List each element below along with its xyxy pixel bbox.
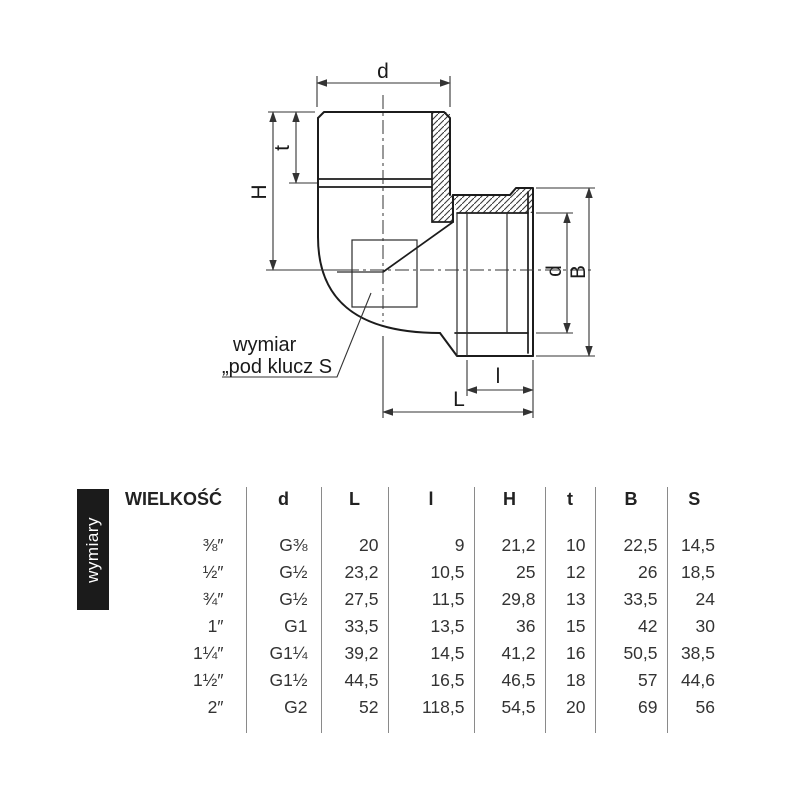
table-cell: 33,5 <box>595 586 667 613</box>
table-header-row: WIELKOŚĆdLlHtBS <box>115 487 721 532</box>
table-cell: 24 <box>667 586 721 613</box>
dim-label-d-top: d <box>377 60 389 83</box>
table-cell: 1″ <box>115 613 246 640</box>
dim-label-B: B <box>567 265 590 279</box>
table-cell: ⅜″ <box>115 532 246 559</box>
technical-drawing: d t H d B l L wymiar „pod klucz S <box>0 0 800 460</box>
dim-label-t: t <box>271 145 294 151</box>
table-cell: 50,5 <box>595 640 667 667</box>
table-row: 1½″G1½44,516,546,5185744,6 <box>115 667 721 694</box>
table-cell: 25 <box>474 559 545 586</box>
table-cell: 14,5 <box>667 532 721 559</box>
table-row: ½″G½23,210,525122618,5 <box>115 559 721 586</box>
column-header-l: L <box>321 487 388 532</box>
table-cell: 69 <box>595 694 667 721</box>
table-cell: 46,5 <box>474 667 545 694</box>
table-cell: ¾″ <box>115 586 246 613</box>
table-cell: 44,6 <box>667 667 721 694</box>
table-cell: 22,5 <box>595 532 667 559</box>
column-header-l: l <box>388 487 474 532</box>
dim-label-L: L <box>453 388 465 411</box>
table-cell: 20 <box>321 532 388 559</box>
spacer-cell <box>388 721 474 733</box>
table-cell: 1¼″ <box>115 640 246 667</box>
table-cell: 26 <box>595 559 667 586</box>
table-cell: 12 <box>545 559 595 586</box>
table-cell: 57 <box>595 667 667 694</box>
table-cell: G1 <box>246 613 321 640</box>
spacer-cell <box>474 721 545 733</box>
note-line-1: wymiar <box>232 334 297 356</box>
column-header-b: B <box>595 487 667 532</box>
elbow-body-outline <box>318 112 533 356</box>
spacer-cell <box>321 721 388 733</box>
dimensions-section: wymiary WIELKOŚĆdLlHtBS ⅜″G⅜20921,21022,… <box>77 487 727 733</box>
column-header-wielkość: WIELKOŚĆ <box>115 487 246 532</box>
spacer-cell <box>115 721 246 733</box>
table-cell: 44,5 <box>321 667 388 694</box>
table-cell: 16,5 <box>388 667 474 694</box>
table-cell: 118,5 <box>388 694 474 721</box>
column-header-h: H <box>474 487 545 532</box>
column-header-s: S <box>667 487 721 532</box>
table-bottom-spacer <box>115 721 721 733</box>
table-cell: 38,5 <box>667 640 721 667</box>
table-cell: 10 <box>545 532 595 559</box>
table-cell: 1½″ <box>115 667 246 694</box>
note-line-2: „pod klucz S <box>222 356 332 378</box>
table-cell: 42 <box>595 613 667 640</box>
elbow-detail-lines <box>337 213 507 356</box>
size-table: WIELKOŚĆdLlHtBS ⅜″G⅜20921,21022,514,5½″G… <box>115 487 721 733</box>
table-cell: 30 <box>667 613 721 640</box>
table-cell: G2 <box>246 694 321 721</box>
table-cell: 18 <box>545 667 595 694</box>
spacer-cell <box>667 721 721 733</box>
table-cell: G⅜ <box>246 532 321 559</box>
table-cell: 36 <box>474 613 545 640</box>
table-cell: ½″ <box>115 559 246 586</box>
table-cell: G1¼ <box>246 640 321 667</box>
section-label-badge: wymiary <box>77 489 109 610</box>
column-header-d: d <box>246 487 321 532</box>
elbow-internal-lines <box>318 112 528 353</box>
table-row: 1¼″G1¼39,214,541,21650,538,5 <box>115 640 721 667</box>
table-cell: 21,2 <box>474 532 545 559</box>
table-cell: 41,2 <box>474 640 545 667</box>
dim-label-d-right: d <box>543 265 566 277</box>
table-cell: 56 <box>667 694 721 721</box>
spacer-cell <box>595 721 667 733</box>
dim-label-H: H <box>248 184 271 199</box>
table-cell: 27,5 <box>321 586 388 613</box>
table-row: ¾″G½27,511,529,81333,524 <box>115 586 721 613</box>
table-cell: 39,2 <box>321 640 388 667</box>
section-hatching <box>432 112 533 222</box>
table-cell: 16 <box>545 640 595 667</box>
spacer-cell <box>246 721 321 733</box>
table-cell: 20 <box>545 694 595 721</box>
table-cell: G½ <box>246 559 321 586</box>
spacer-cell <box>545 721 595 733</box>
table-cell: 14,5 <box>388 640 474 667</box>
table-row: ⅜″G⅜20921,21022,514,5 <box>115 532 721 559</box>
section-label-text: wymiary <box>83 517 103 583</box>
table-cell: G1½ <box>246 667 321 694</box>
size-table-body: ⅜″G⅜20921,21022,514,5½″G½23,210,52512261… <box>115 532 721 733</box>
table-cell: 52 <box>321 694 388 721</box>
wrench-size-note: wymiar „pod klucz S <box>222 334 332 378</box>
table-cell: 15 <box>545 613 595 640</box>
table-cell: 13,5 <box>388 613 474 640</box>
table-cell: 29,8 <box>474 586 545 613</box>
dim-label-l: l <box>496 365 501 388</box>
table-cell: 11,5 <box>388 586 474 613</box>
table-cell: 18,5 <box>667 559 721 586</box>
table-cell: 2″ <box>115 694 246 721</box>
table-cell: 10,5 <box>388 559 474 586</box>
table-row: 1″G133,513,536154230 <box>115 613 721 640</box>
table-row: 2″G252118,554,5206956 <box>115 694 721 721</box>
table-cell: 13 <box>545 586 595 613</box>
column-header-t: t <box>545 487 595 532</box>
table-cell: 9 <box>388 532 474 559</box>
table-cell: 54,5 <box>474 694 545 721</box>
table-cell: 33,5 <box>321 613 388 640</box>
wrench-flats-square <box>352 240 417 307</box>
table-cell: 23,2 <box>321 559 388 586</box>
table-cell: G½ <box>246 586 321 613</box>
